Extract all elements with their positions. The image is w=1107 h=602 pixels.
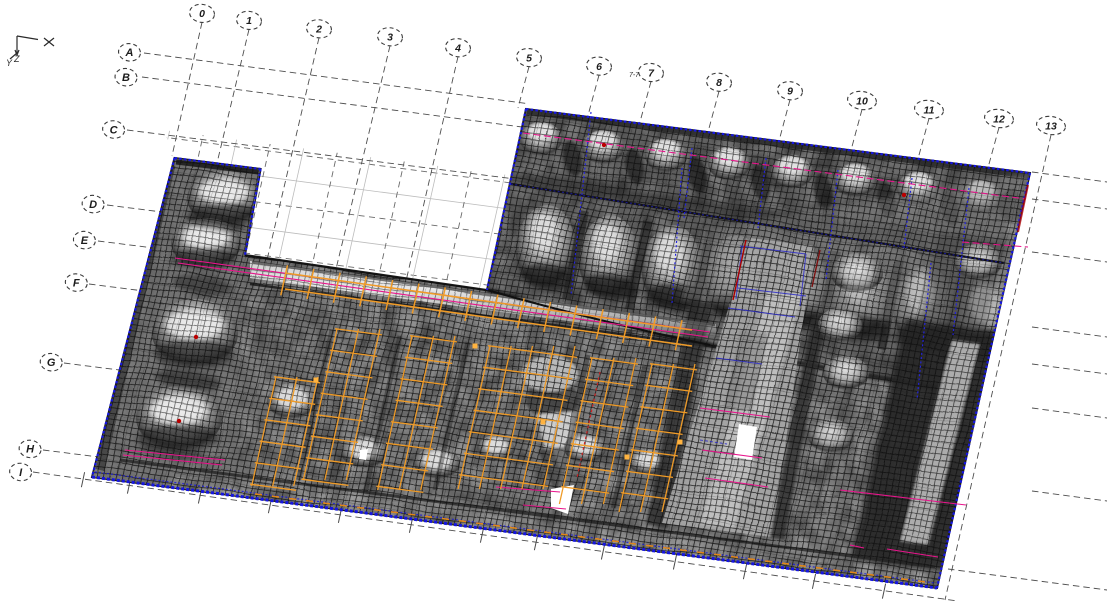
svg-text:5: 5 xyxy=(526,52,532,64)
svg-text:3: 3 xyxy=(387,32,393,44)
svg-text:7-7: 7-7 xyxy=(629,72,640,79)
svg-text:A: A xyxy=(125,47,134,59)
svg-text:Y: Y xyxy=(6,58,13,68)
svg-text:2: 2 xyxy=(315,24,322,36)
svg-text:G: G xyxy=(47,357,56,369)
svg-text:4: 4 xyxy=(454,43,461,55)
svg-text:Z: Z xyxy=(13,54,20,64)
svg-text:12: 12 xyxy=(993,113,1005,125)
svg-text:D: D xyxy=(89,199,97,211)
svg-text:11: 11 xyxy=(924,104,935,116)
svg-text:F: F xyxy=(73,277,80,289)
svg-text:H: H xyxy=(26,444,35,456)
svg-text:9: 9 xyxy=(787,86,793,98)
svg-text:C: C xyxy=(110,124,119,136)
svg-text:10: 10 xyxy=(856,95,868,107)
svg-text:6: 6 xyxy=(596,61,602,73)
svg-text:8: 8 xyxy=(716,77,722,89)
svg-text:0: 0 xyxy=(199,8,205,20)
svg-text:E: E xyxy=(81,235,89,247)
svg-text:1: 1 xyxy=(246,15,252,27)
svg-text:13: 13 xyxy=(1045,120,1057,132)
svg-text:B: B xyxy=(122,72,130,84)
